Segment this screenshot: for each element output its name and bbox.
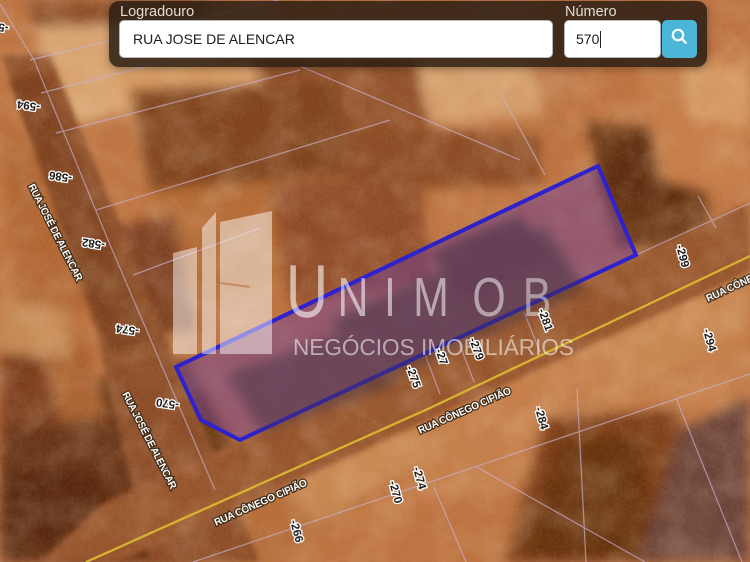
svg-text:I: I: [384, 266, 396, 328]
svg-text:O: O: [472, 266, 505, 328]
svg-text:N: N: [338, 266, 369, 328]
svg-text:NEGÓCIOS IMOBILIÁRIOS: NEGÓCIOS IMOBILIÁRIOS: [293, 334, 574, 360]
svg-text:M: M: [413, 266, 449, 328]
svg-text:U: U: [286, 249, 328, 333]
svg-text:-5: -5: [0, 20, 9, 33]
